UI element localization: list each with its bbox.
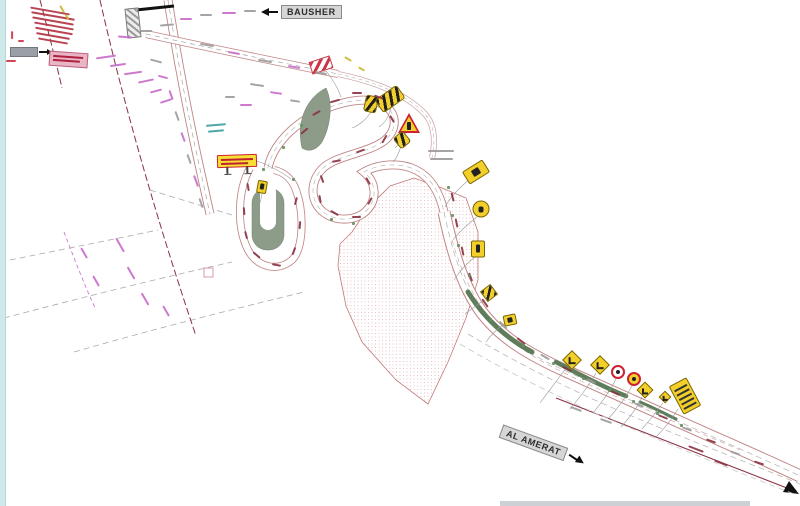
highlighted-note: [49, 51, 89, 69]
micro-annotation: [352, 92, 362, 94]
plan-drawing: [0, 0, 800, 506]
micro-annotation: [632, 400, 635, 403]
speed-limit-circle-sign-glyph: [632, 377, 636, 381]
small-pink-square: [204, 268, 213, 277]
temporary-notice-board: [217, 154, 257, 168]
temporary-notice-board-glyph: [244, 173, 251, 175]
roundabout-circle-sign-glyph: [478, 206, 483, 212]
road-works-sign-glyph: [476, 245, 481, 253]
micro-annotation: [680, 424, 683, 427]
micro-annotation: [447, 186, 450, 189]
micro-annotation: [140, 30, 152, 32]
micro-annotation: [292, 178, 295, 181]
micro-annotation: [282, 146, 285, 149]
prohibition-circle-sign: [611, 365, 625, 379]
left-arrow-icon: [261, 8, 278, 17]
micro-annotation: [352, 216, 361, 218]
micro-annotation: [6, 60, 16, 62]
hatched-structure: [124, 7, 141, 38]
roundabout-circle-sign: [473, 201, 490, 218]
micro-annotation: [262, 168, 265, 171]
micro-annotation: [656, 412, 659, 415]
bausher-label-text: BAUSHER: [281, 5, 342, 19]
gray-reference-tag: [10, 47, 38, 57]
viewport-bottom-edge: [500, 501, 750, 506]
micro-annotation: [430, 158, 453, 160]
micro-annotation: [582, 377, 585, 380]
micro-annotation: [352, 222, 355, 225]
prohibition-circle-sign-glyph: [616, 370, 620, 374]
note-text-line: [53, 59, 80, 63]
keep-left-sign-glyph: [507, 317, 512, 323]
speed-limit-circle-sign: [627, 372, 641, 386]
viewport-left-edge: [0, 0, 6, 506]
micro-annotation: [608, 389, 611, 392]
tag-arrow: [39, 51, 47, 53]
micro-annotation: [451, 214, 454, 217]
plan-canvas: BAUSHER AL AMERAT: [0, 0, 800, 506]
micro-annotation: [240, 104, 252, 106]
temporary-notice-board-glyph: [221, 162, 248, 165]
micro-annotation: [222, 12, 236, 14]
warning-diamond-sign-4-glyph: [663, 396, 668, 401]
micro-annotation: [428, 150, 454, 152]
micro-annotation: [457, 244, 460, 247]
temporary-notice-board-glyph: [225, 173, 232, 175]
micro-annotation: [489, 318, 492, 321]
micro-annotation: [11, 31, 13, 39]
micro-annotation: [330, 218, 333, 221]
direction-label-bausher: BAUSHER: [261, 5, 342, 19]
micro-annotation: [225, 96, 235, 98]
temporary-notice-board-glyph: [221, 158, 253, 161]
micro-annotation: [244, 10, 256, 12]
micro-annotation: [18, 40, 24, 42]
warning-diamond-sign-2-glyph: [597, 363, 604, 370]
micro-annotation: [180, 18, 192, 20]
micro-annotation: [300, 124, 303, 127]
small-marker-sign-glyph: [260, 184, 264, 190]
paired-warning-sign-glyph: [470, 167, 481, 178]
micro-annotation: [522, 344, 525, 347]
warning-diamond-sign-3-glyph: [642, 388, 648, 394]
warning-diamond-sign-1-glyph: [569, 358, 576, 365]
micro-annotation: [200, 14, 212, 16]
sharp-curve-warning-triangle-sign-glyph: [407, 122, 411, 130]
crescent-island: [300, 88, 330, 150]
road-works-sign: [471, 241, 485, 258]
micro-annotation: [468, 274, 471, 277]
micro-annotation: [552, 362, 555, 365]
